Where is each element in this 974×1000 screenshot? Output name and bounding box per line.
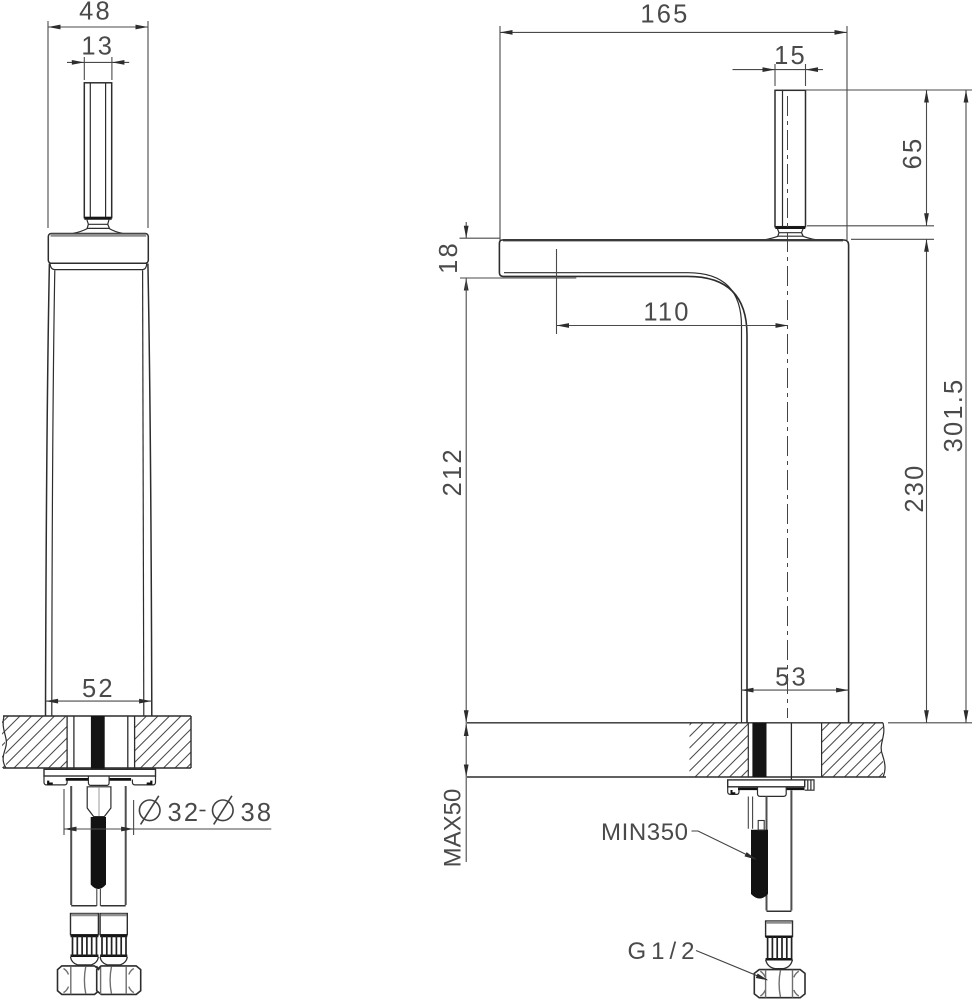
svg-text:301.5: 301.5 xyxy=(940,378,968,453)
svg-text:15: 15 xyxy=(774,42,807,70)
svg-text:MIN350: MIN350 xyxy=(601,819,689,846)
svg-text:MAX50: MAX50 xyxy=(440,789,467,868)
svg-text:32: 32 xyxy=(168,799,201,827)
svg-text:165: 165 xyxy=(640,0,689,28)
svg-text:13: 13 xyxy=(81,33,114,61)
svg-text:65: 65 xyxy=(899,137,927,170)
svg-text:230: 230 xyxy=(901,463,929,512)
svg-text:110: 110 xyxy=(643,299,690,327)
svg-text:G1/2: G1/2 xyxy=(628,938,700,965)
svg-text:212: 212 xyxy=(439,447,467,496)
svg-text:48: 48 xyxy=(79,0,112,26)
svg-text:18: 18 xyxy=(435,241,463,274)
svg-text:53: 53 xyxy=(775,664,808,692)
svg-text:38: 38 xyxy=(241,799,274,827)
svg-text:52: 52 xyxy=(82,675,115,703)
